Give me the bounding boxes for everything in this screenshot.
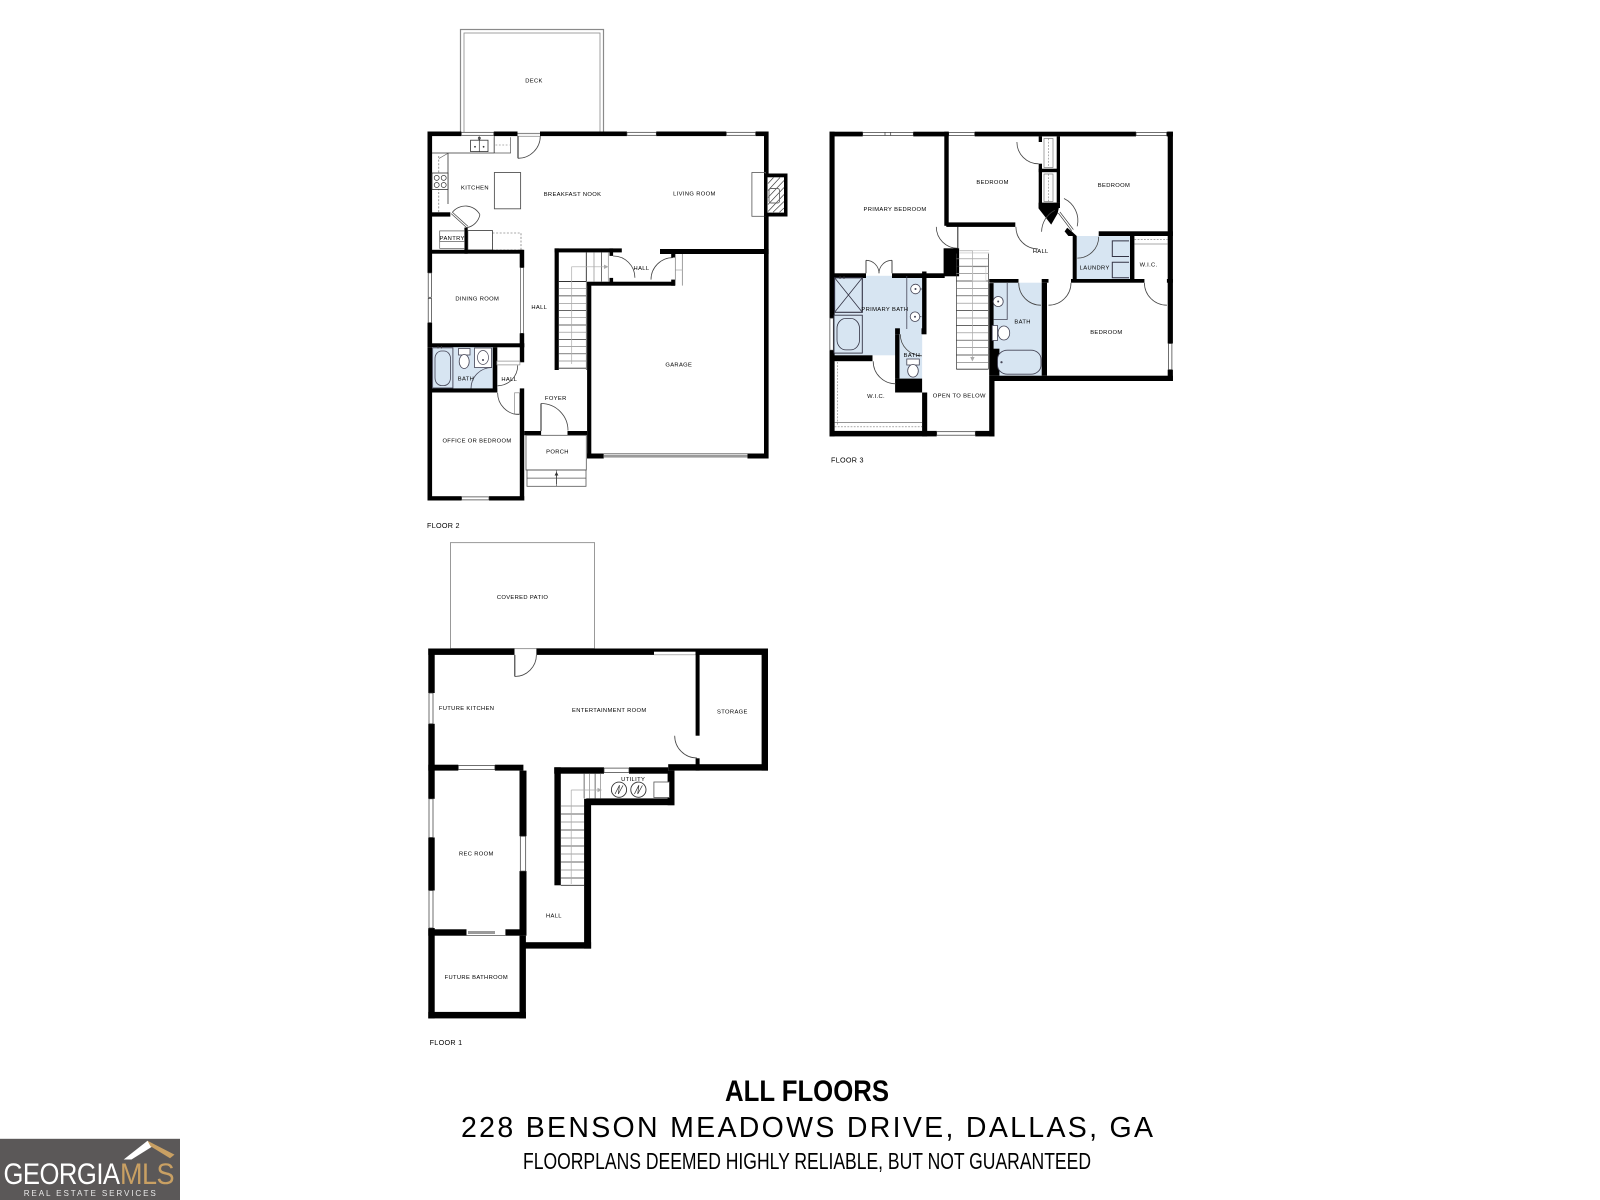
svg-text:W.I.C.: W.I.C. (1140, 262, 1158, 268)
svg-text:COVERED PATIO: COVERED PATIO (497, 595, 549, 601)
svg-text:LIVING ROOM: LIVING ROOM (673, 191, 716, 197)
svg-text:BATH: BATH (1014, 320, 1030, 326)
svg-text:BATH: BATH (904, 353, 920, 359)
svg-text:FOYER: FOYER (545, 396, 567, 402)
svg-text:STORAGE: STORAGE (717, 710, 748, 716)
svg-text:ALL FLOORS: ALL FLOORS (725, 1075, 889, 1108)
svg-text:FLOOR 1: FLOOR 1 (430, 1038, 463, 1047)
svg-text:BREAKFAST NOOK: BREAKFAST NOOK (544, 192, 602, 198)
svg-text:FUTURE KITCHEN: FUTURE KITCHEN (439, 706, 494, 712)
svg-text:HALL: HALL (501, 377, 517, 383)
svg-text:228 BENSON MEADOWS DRIVE, DALL: 228 BENSON MEADOWS DRIVE, DALLAS, GA (461, 1112, 1153, 1144)
svg-text:DINING ROOM: DINING ROOM (455, 297, 499, 303)
svg-text:BEDROOM: BEDROOM (1090, 330, 1122, 336)
svg-text:HALL: HALL (546, 913, 562, 919)
svg-text:PRIMARY BEDROOM: PRIMARY BEDROOM (863, 207, 926, 213)
svg-text:LAUNDRY: LAUNDRY (1080, 265, 1110, 271)
svg-text:FLOOR 3: FLOOR 3 (831, 456, 864, 465)
svg-text:KITCHEN: KITCHEN (461, 186, 489, 192)
svg-text:FUTURE BATHROOM: FUTURE BATHROOM (445, 975, 508, 981)
svg-text:UTILITY: UTILITY (621, 777, 645, 783)
svg-text:GARAGE: GARAGE (665, 363, 692, 369)
svg-text:PORCH: PORCH (546, 450, 569, 456)
svg-text:W.I.C.: W.I.C. (867, 394, 885, 400)
svg-text:BATH: BATH (458, 376, 474, 382)
svg-text:PANTRY: PANTRY (440, 236, 465, 242)
svg-text:PRIMARY BATH: PRIMARY BATH (861, 307, 908, 313)
svg-text:HALL: HALL (634, 266, 650, 272)
svg-text:DECK: DECK (525, 79, 543, 85)
svg-text:REAL ESTATE SERVICES: REAL ESTATE SERVICES (24, 1189, 158, 1198)
svg-text:MLS: MLS (120, 1158, 174, 1191)
svg-text:OPEN TO BELOW: OPEN TO BELOW (933, 394, 986, 400)
svg-text:FLOOR 2: FLOOR 2 (427, 521, 460, 530)
svg-text:GEORGIA: GEORGIA (4, 1158, 121, 1191)
svg-text:BEDROOM: BEDROOM (1098, 183, 1130, 189)
svg-text:ENTERTAINMENT ROOM: ENTERTAINMENT ROOM (572, 708, 647, 714)
svg-text:HALL: HALL (531, 305, 547, 311)
svg-text:HALL: HALL (1033, 249, 1049, 255)
svg-text:OFFICE OR BEDROOM: OFFICE OR BEDROOM (442, 438, 511, 444)
svg-text:BEDROOM: BEDROOM (976, 180, 1008, 186)
svg-text:REC ROOM: REC ROOM (459, 851, 494, 857)
svg-text:FLOORPLANS DEEMED HIGHLY RELIA: FLOORPLANS DEEMED HIGHLY RELIABLE, BUT N… (523, 1148, 1091, 1174)
